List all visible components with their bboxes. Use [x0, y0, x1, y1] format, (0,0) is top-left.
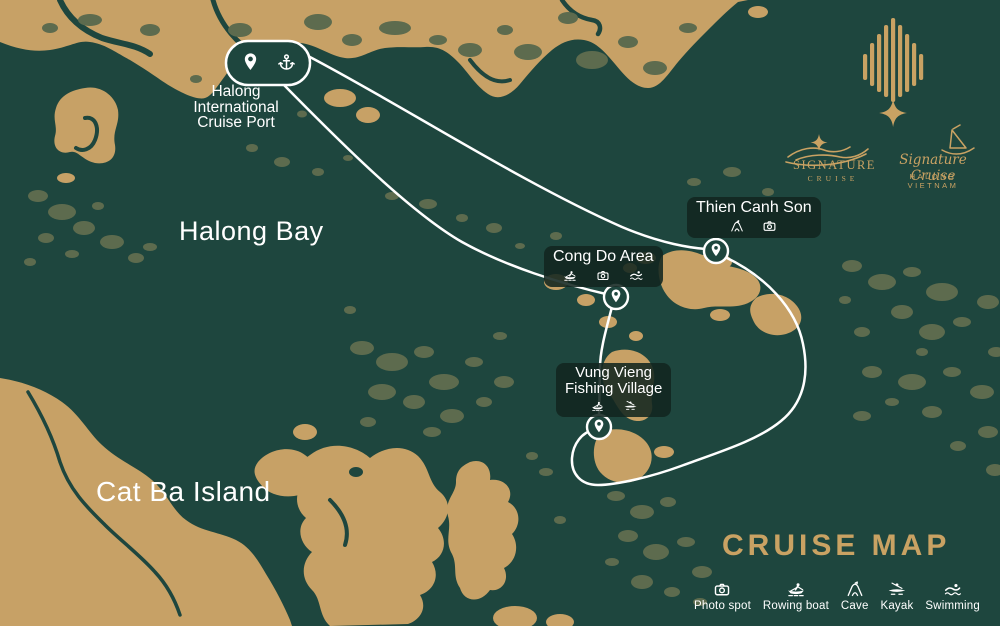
map-title: CRUISE MAP — [722, 529, 950, 563]
kayak-icon — [885, 580, 909, 598]
signature-emblem-icon — [863, 18, 923, 127]
photo-spot-icon — [761, 219, 778, 233]
kayak-icon — [622, 399, 639, 412]
legend-item-kayak: Kayak — [880, 580, 913, 612]
region-label-halong-bay: Halong Bay — [179, 216, 324, 247]
brand-name: SIGNATURE — [793, 158, 873, 173]
stop-badge-vung-vieng: Vung Vieng Fishing Village — [556, 363, 671, 417]
legend: Photo spot Rowing boat Cave Kayak Swimmi… — [694, 579, 980, 612]
rowing-boat-icon — [561, 268, 579, 282]
port-label: Halong International Cruise Port — [170, 84, 302, 131]
brand-block: SIGNATURE CRUISE Signature Cruise HALONG… — [770, 10, 990, 190]
legend-item-photo-spot: Photo spot — [694, 581, 751, 612]
legend-item-rowing-boat: Rowing boat — [763, 579, 829, 612]
stop-pin-vung-vieng[interactable] — [587, 415, 611, 439]
swimming-icon — [941, 580, 964, 598]
cave-icon — [845, 580, 865, 598]
south-island-cluster — [297, 446, 574, 626]
legend-item-swimming: Swimming — [925, 580, 980, 612]
legend-label: Kayak — [880, 600, 913, 612]
photo-spot-icon — [595, 269, 611, 282]
legend-label: Photo spot — [694, 600, 751, 612]
rowing-boat-icon — [784, 579, 808, 598]
brand-sub: CRUISE — [793, 174, 873, 183]
stop-badge-thien-canh-son: Thien Canh Son — [687, 197, 821, 238]
stop-name: Cong Do Area — [553, 248, 654, 266]
sailboat-icon — [942, 125, 974, 154]
port-label-line3: Cruise Port — [170, 115, 302, 131]
port-label-line1: Halong — [170, 84, 302, 100]
legend-label: Cave — [841, 600, 869, 612]
cruise-map: Halong International Cruise Port Halong … — [0, 0, 1000, 626]
rowing-boat-icon — [589, 399, 606, 412]
port-label-line2: International — [170, 100, 302, 116]
cave-icon — [729, 219, 745, 233]
swimming-icon — [627, 268, 645, 282]
stop-badge-cong-do-area: Cong Do Area — [544, 246, 663, 287]
stop-pin-cong-do[interactable] — [604, 285, 628, 309]
region-label-cat-ba-island: Cat Ba Island — [96, 476, 271, 508]
stop-name: Thien Canh Son — [696, 199, 812, 217]
stop-name-line2: Fishing Village — [565, 381, 662, 397]
photo-spot-icon — [712, 581, 732, 598]
stop-name-line1: Vung Vieng — [565, 365, 662, 381]
port-marker[interactable] — [226, 41, 310, 85]
legend-label: Rowing boat — [763, 600, 829, 612]
brand-script-sub: HALONG VIETNAM — [882, 172, 984, 190]
stop-pin-thien-canh-son[interactable] — [704, 239, 728, 263]
legend-label: Swimming — [925, 600, 980, 612]
legend-item-cave: Cave — [841, 580, 869, 612]
